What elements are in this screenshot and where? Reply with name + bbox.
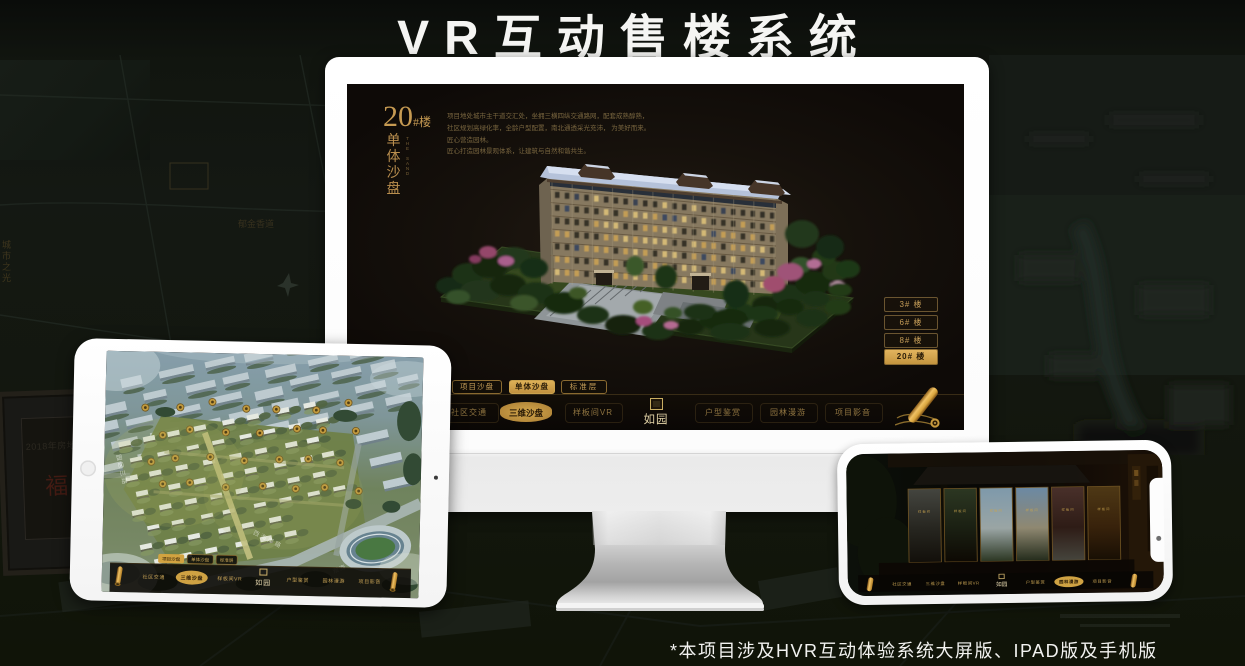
svg-text:郁金香道: 郁金香道: [238, 218, 274, 229]
svg-text:社区交通: 社区交通: [143, 574, 166, 581]
svg-text:样板间: 样板间: [954, 508, 967, 513]
svg-text:样板间VR: 样板间VR: [217, 575, 242, 583]
svg-text:项目影音: 项目影音: [358, 578, 381, 585]
svg-text:园林漫游: 园林漫游: [322, 577, 345, 584]
svg-text:如园: 如园: [255, 578, 271, 587]
svg-text:如园: 如园: [996, 580, 1008, 588]
svg-text:样板间: 样板间: [1097, 506, 1110, 511]
svg-text:三维沙盘: 三维沙盘: [181, 574, 204, 581]
svg-text:样板间: 样板间: [990, 508, 1003, 513]
svg-text:户型鉴赏: 户型鉴赏: [286, 577, 309, 584]
svg-text:样板间: 样板间: [918, 509, 931, 514]
svg-text:样板间: 样板间: [1026, 507, 1039, 512]
svg-text:样板间: 样板间: [1061, 507, 1074, 512]
